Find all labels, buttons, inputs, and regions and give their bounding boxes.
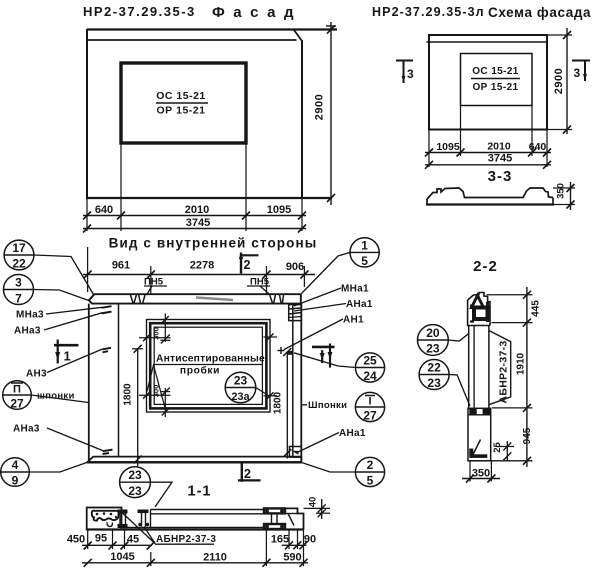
- svg-text:23а: 23а: [231, 391, 250, 403]
- svg-text:350: 350: [556, 183, 567, 199]
- svg-text:2900: 2900: [314, 94, 326, 120]
- svg-text:23: 23: [128, 468, 142, 482]
- svg-text:23: 23: [426, 342, 440, 356]
- svg-text:2278: 2278: [190, 260, 214, 272]
- svg-text:АНа3: АНа3: [13, 424, 40, 435]
- svg-text:95: 95: [95, 533, 107, 545]
- svg-text:МНа3: МНа3: [16, 310, 44, 321]
- svg-text:ОС 15-21: ОС 15-21: [156, 90, 206, 102]
- svg-text:АБНР2-37-3: АБНР2-37-3: [156, 534, 216, 545]
- svg-text:НР2-37.29.35-3л: НР2-37.29.35-3л: [372, 5, 485, 19]
- svg-text:АН1: АН1: [343, 315, 364, 326]
- svg-text:445: 445: [531, 300, 542, 317]
- svg-text:945: 945: [522, 427, 533, 444]
- svg-text:2900: 2900: [553, 68, 565, 94]
- svg-text:Шпонки: Шпонки: [308, 400, 347, 411]
- svg-text:АНа1: АНа1: [346, 299, 373, 310]
- svg-text:7: 7: [15, 292, 22, 306]
- svg-text:пробки: пробки: [180, 365, 220, 377]
- svg-text:2110: 2110: [203, 552, 227, 564]
- svg-text:23: 23: [234, 374, 248, 388]
- svg-text:27: 27: [363, 409, 377, 423]
- svg-text:40: 40: [308, 497, 319, 508]
- svg-text:1: 1: [64, 349, 71, 364]
- svg-text:22: 22: [427, 361, 441, 375]
- svg-text:П: П: [13, 384, 21, 396]
- svg-text:2010: 2010: [185, 204, 209, 216]
- svg-text:I: I: [368, 396, 371, 408]
- svg-text:1910: 1910: [516, 352, 527, 375]
- svg-text:640: 640: [95, 204, 113, 216]
- svg-text:20: 20: [426, 326, 440, 340]
- svg-text:1095: 1095: [267, 204, 291, 216]
- svg-text:1800: 1800: [273, 391, 284, 414]
- svg-text:25: 25: [492, 442, 503, 453]
- svg-text:АН3: АН3: [26, 369, 47, 380]
- svg-text:590: 590: [283, 552, 301, 564]
- svg-text:350: 350: [472, 468, 490, 480]
- svg-text:5: 5: [361, 254, 368, 268]
- svg-text:17: 17: [12, 241, 26, 255]
- svg-text:23: 23: [427, 376, 441, 390]
- svg-text:165: 165: [271, 534, 289, 546]
- svg-text:АБНР2-37-3: АБНР2-37-3: [498, 340, 510, 403]
- svg-text:25: 25: [363, 354, 377, 368]
- svg-text:640: 640: [529, 141, 547, 153]
- svg-text:Антисептированные: Антисептированные: [156, 354, 265, 365]
- svg-text:Схема фасада: Схема фасада: [488, 5, 591, 20]
- svg-text:4: 4: [12, 458, 19, 472]
- svg-text:2: 2: [244, 258, 251, 272]
- svg-text:22: 22: [12, 257, 26, 271]
- svg-text:ОР 15-21: ОР 15-21: [157, 105, 206, 117]
- svg-text:1: 1: [361, 239, 368, 253]
- svg-text:5: 5: [367, 474, 374, 488]
- svg-text:450: 450: [67, 534, 85, 546]
- svg-text:3745: 3745: [186, 217, 210, 229]
- svg-text:2010: 2010: [487, 141, 511, 153]
- svg-text:3-3: 3-3: [488, 168, 513, 185]
- svg-text:2: 2: [367, 458, 374, 472]
- svg-text:Вид с внутренней стороны: Вид с внутренней стороны: [109, 236, 318, 251]
- svg-text:27: 27: [10, 397, 24, 411]
- svg-text:1800: 1800: [123, 383, 134, 406]
- svg-text:МНа1: МНа1: [341, 284, 369, 295]
- svg-text:1-1: 1-1: [188, 484, 212, 500]
- svg-text:НР2-37.29.35-3: НР2-37.29.35-3: [83, 4, 196, 19]
- svg-text:ОС 15-21: ОС 15-21: [472, 66, 519, 77]
- svg-text:3: 3: [407, 67, 414, 81]
- svg-text:2: 2: [244, 467, 251, 481]
- svg-text:1095: 1095: [436, 141, 460, 153]
- svg-text:45: 45: [127, 534, 139, 546]
- svg-text:24: 24: [363, 369, 377, 383]
- svg-text:АНа1: АНа1: [339, 428, 366, 439]
- svg-text:АНа3: АНа3: [14, 326, 41, 337]
- svg-text:Фасад: Фасад: [212, 4, 302, 21]
- svg-text:3745: 3745: [488, 153, 512, 165]
- svg-text:2-2: 2-2: [473, 258, 498, 275]
- svg-text:3: 3: [15, 276, 22, 290]
- svg-text:906: 906: [286, 261, 304, 273]
- svg-text:1045: 1045: [110, 551, 134, 563]
- svg-text:961: 961: [112, 260, 130, 272]
- svg-text:90: 90: [304, 534, 316, 546]
- svg-text:ОР 15-21: ОР 15-21: [472, 82, 518, 93]
- svg-text:3: 3: [574, 66, 581, 80]
- svg-text:23: 23: [128, 484, 142, 498]
- svg-text:9: 9: [12, 474, 19, 488]
